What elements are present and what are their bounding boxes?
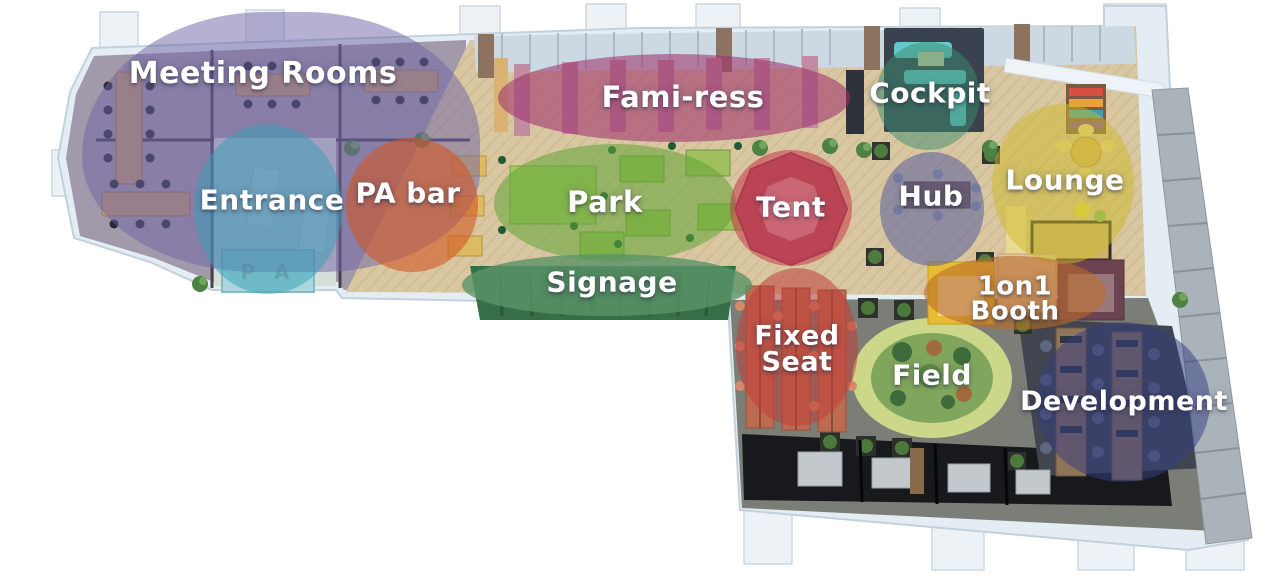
zone-overlays: Meeting RoomsFami-ressCockpitEntrancePA …: [0, 0, 1280, 582]
zone-label-field: Field: [892, 363, 972, 390]
zone-fami-ress: Fami-ress: [498, 54, 850, 142]
zone-label-tent: Tent: [756, 195, 826, 222]
zone-development: Development: [1036, 322, 1210, 482]
zone-hub: Hub: [880, 152, 984, 266]
zone-signage: Signage: [462, 254, 752, 316]
zone-lounge: Lounge: [992, 104, 1134, 264]
zone-entrance: Entrance: [194, 124, 342, 294]
zone-label-development: Development: [1020, 389, 1228, 415]
zone-label-meeting-rooms: Meeting Rooms: [129, 60, 397, 89]
zone-label-1on1-booth: 1on1Booth: [971, 274, 1060, 323]
zone-pa-bar: PA bar: [346, 138, 478, 272]
zone-label-park: Park: [567, 189, 643, 217]
zone-label-fami-ress: Fami-ress: [602, 84, 765, 112]
zone-label-pa-bar: PA bar: [355, 181, 460, 208]
zone-1on1-booth: 1on1Booth: [924, 256, 1106, 330]
zone-label-entrance: Entrance: [200, 188, 345, 215]
zone-park: Park: [494, 144, 736, 262]
zone-tent: Tent: [730, 150, 852, 266]
zone-cockpit: Cockpit: [876, 42, 980, 150]
zone-label-lounge: Lounge: [1006, 168, 1125, 195]
zone-label-hub: Hub: [899, 184, 964, 211]
office-floorplan: P A: [0, 0, 1280, 582]
zone-label-fixed-seat: FixedSeat: [754, 323, 839, 374]
zone-field: Field: [862, 318, 1002, 434]
zone-label-cockpit: Cockpit: [869, 81, 991, 108]
zone-label-signage: Signage: [546, 270, 677, 297]
zone-fixed-seat: FixedSeat: [736, 268, 858, 426]
